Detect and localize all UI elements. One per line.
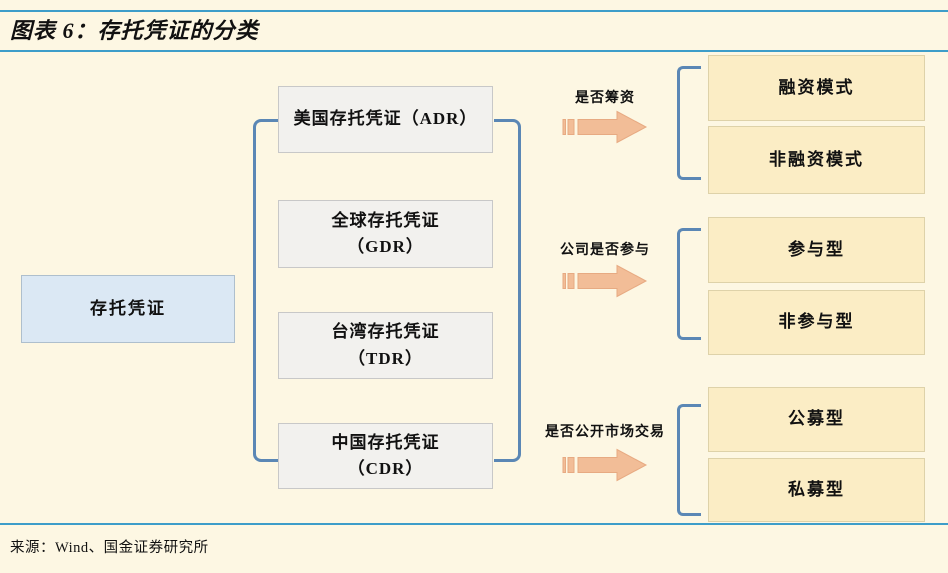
source-note: 来源：Wind、国金证券研究所 xyxy=(10,536,209,557)
header-rule xyxy=(0,50,948,52)
outcome-node: 私募型 xyxy=(708,458,925,522)
node-gdr: 全球存托凭证（GDR） xyxy=(278,200,493,268)
outcome-node: 非融资模式 xyxy=(708,126,925,194)
left-brace xyxy=(253,119,279,462)
branch-brace xyxy=(677,66,701,180)
node-gdr-sublabel: （GDR） xyxy=(347,234,424,260)
striped-right-arrow-icon xyxy=(562,110,648,144)
branch-brace xyxy=(677,228,701,340)
top-rule xyxy=(0,10,948,12)
figure-title: 图表 6：存托凭证的分类 xyxy=(10,13,259,45)
outcome-label: 私募型 xyxy=(788,477,845,503)
outcome-node: 公募型 xyxy=(708,387,925,452)
node-tdr-label: 台湾存托凭证 xyxy=(332,319,440,345)
outcome-label: 融资模式 xyxy=(779,75,855,101)
striped-right-arrow-icon xyxy=(562,264,648,298)
striped-right-arrow-icon xyxy=(562,448,648,482)
node-gdr-label: 全球存托凭证 xyxy=(332,208,440,234)
node-tdr-sublabel: （TDR） xyxy=(348,346,423,372)
outcome-node: 融资模式 xyxy=(708,55,925,121)
node-adr-label: 美国存托凭证（ADR） xyxy=(294,106,478,132)
branch-criterion-label: 是否筹资 xyxy=(516,87,694,107)
outcome-label: 公募型 xyxy=(788,406,845,432)
outcome-node: 参与型 xyxy=(708,217,925,283)
branch-criterion-label: 公司是否参与 xyxy=(516,239,694,259)
node-cdr: 中国存托凭证（CDR） xyxy=(278,423,493,489)
node-cdr-sublabel: （CDR） xyxy=(348,456,424,482)
outcome-label: 非融资模式 xyxy=(769,147,864,173)
root-node: 存托凭证 xyxy=(21,275,235,343)
outcome-label: 参与型 xyxy=(788,237,845,263)
outcome-label: 非参与型 xyxy=(779,309,855,335)
bottom-rule xyxy=(0,523,948,525)
branch-brace xyxy=(677,404,701,516)
node-adr: 美国存托凭证（ADR） xyxy=(278,86,493,153)
root-node-label: 存托凭证 xyxy=(90,296,166,322)
node-cdr-label: 中国存托凭证 xyxy=(332,430,440,456)
branch-criterion-label: 是否公开市场交易 xyxy=(516,421,694,441)
right-brace xyxy=(494,119,521,462)
node-tdr: 台湾存托凭证（TDR） xyxy=(278,312,493,379)
outcome-node: 非参与型 xyxy=(708,290,925,355)
